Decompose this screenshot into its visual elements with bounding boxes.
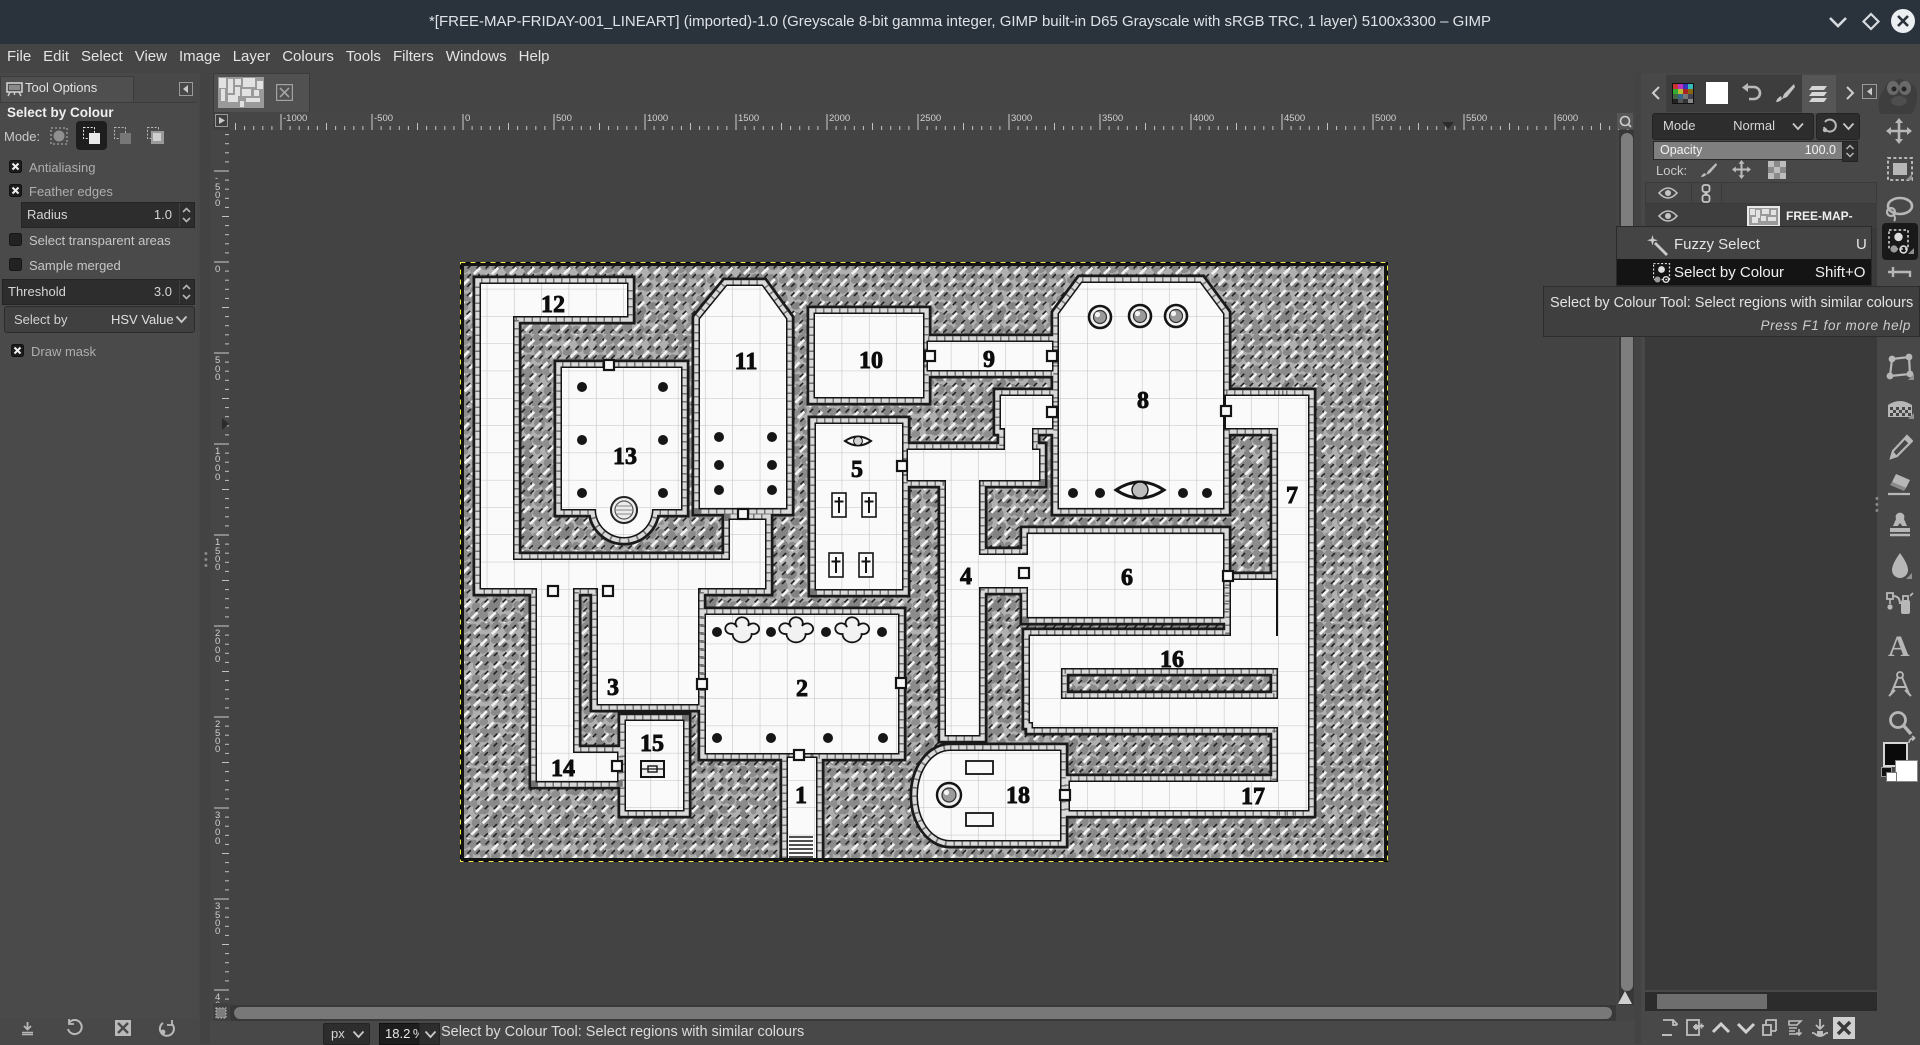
svg-text:0: 0 <box>215 926 220 937</box>
svg-text:17: 17 <box>1241 784 1265 810</box>
svg-text:10: 10 <box>859 348 883 374</box>
svg-text:18: 18 <box>1006 783 1030 809</box>
svg-text:2000: 2000 <box>829 113 850 124</box>
svg-text:2500: 2500 <box>920 113 941 124</box>
svg-text:-500: -500 <box>374 113 393 124</box>
svg-text:1000: 1000 <box>647 113 668 124</box>
svg-text:1500: 1500 <box>738 113 759 124</box>
svg-text:0: 0 <box>215 836 220 847</box>
svg-text:6000: 6000 <box>1557 113 1578 124</box>
svg-text:0: 0 <box>215 198 220 209</box>
svg-text:15: 15 <box>640 731 664 757</box>
svg-text:0: 0 <box>215 372 220 383</box>
svg-text:3500: 3500 <box>1102 113 1123 124</box>
svg-text:4000: 4000 <box>1193 113 1214 124</box>
svg-text:0: 0 <box>215 562 220 573</box>
svg-text:13: 13 <box>613 444 637 470</box>
svg-text:0: 0 <box>215 264 220 275</box>
svg-text:16: 16 <box>1160 647 1184 673</box>
svg-text:4500: 4500 <box>1284 113 1305 124</box>
svg-text:0: 0 <box>215 744 220 755</box>
svg-text:500: 500 <box>556 113 572 124</box>
svg-text:0: 0 <box>465 113 470 124</box>
svg-text:0: 0 <box>215 472 220 483</box>
svg-text:5000: 5000 <box>1375 113 1396 124</box>
svg-text:2: 2 <box>796 676 808 702</box>
svg-text:5500: 5500 <box>1466 113 1487 124</box>
svg-text:3000: 3000 <box>1011 113 1032 124</box>
svg-text:6: 6 <box>1121 565 1133 591</box>
svg-text:0: 0 <box>215 654 220 665</box>
svg-text:14: 14 <box>551 756 575 782</box>
svg-text:4: 4 <box>960 564 972 590</box>
svg-text:7: 7 <box>1286 483 1298 509</box>
svg-text:9: 9 <box>983 347 995 373</box>
svg-text:12: 12 <box>541 292 565 318</box>
svg-text:8: 8 <box>1137 388 1149 414</box>
svg-text:5: 5 <box>851 457 863 483</box>
svg-text:3: 3 <box>607 675 619 701</box>
svg-text:1: 1 <box>795 783 807 809</box>
svg-text:11: 11 <box>735 349 758 375</box>
svg-text:-1000: -1000 <box>283 113 307 124</box>
